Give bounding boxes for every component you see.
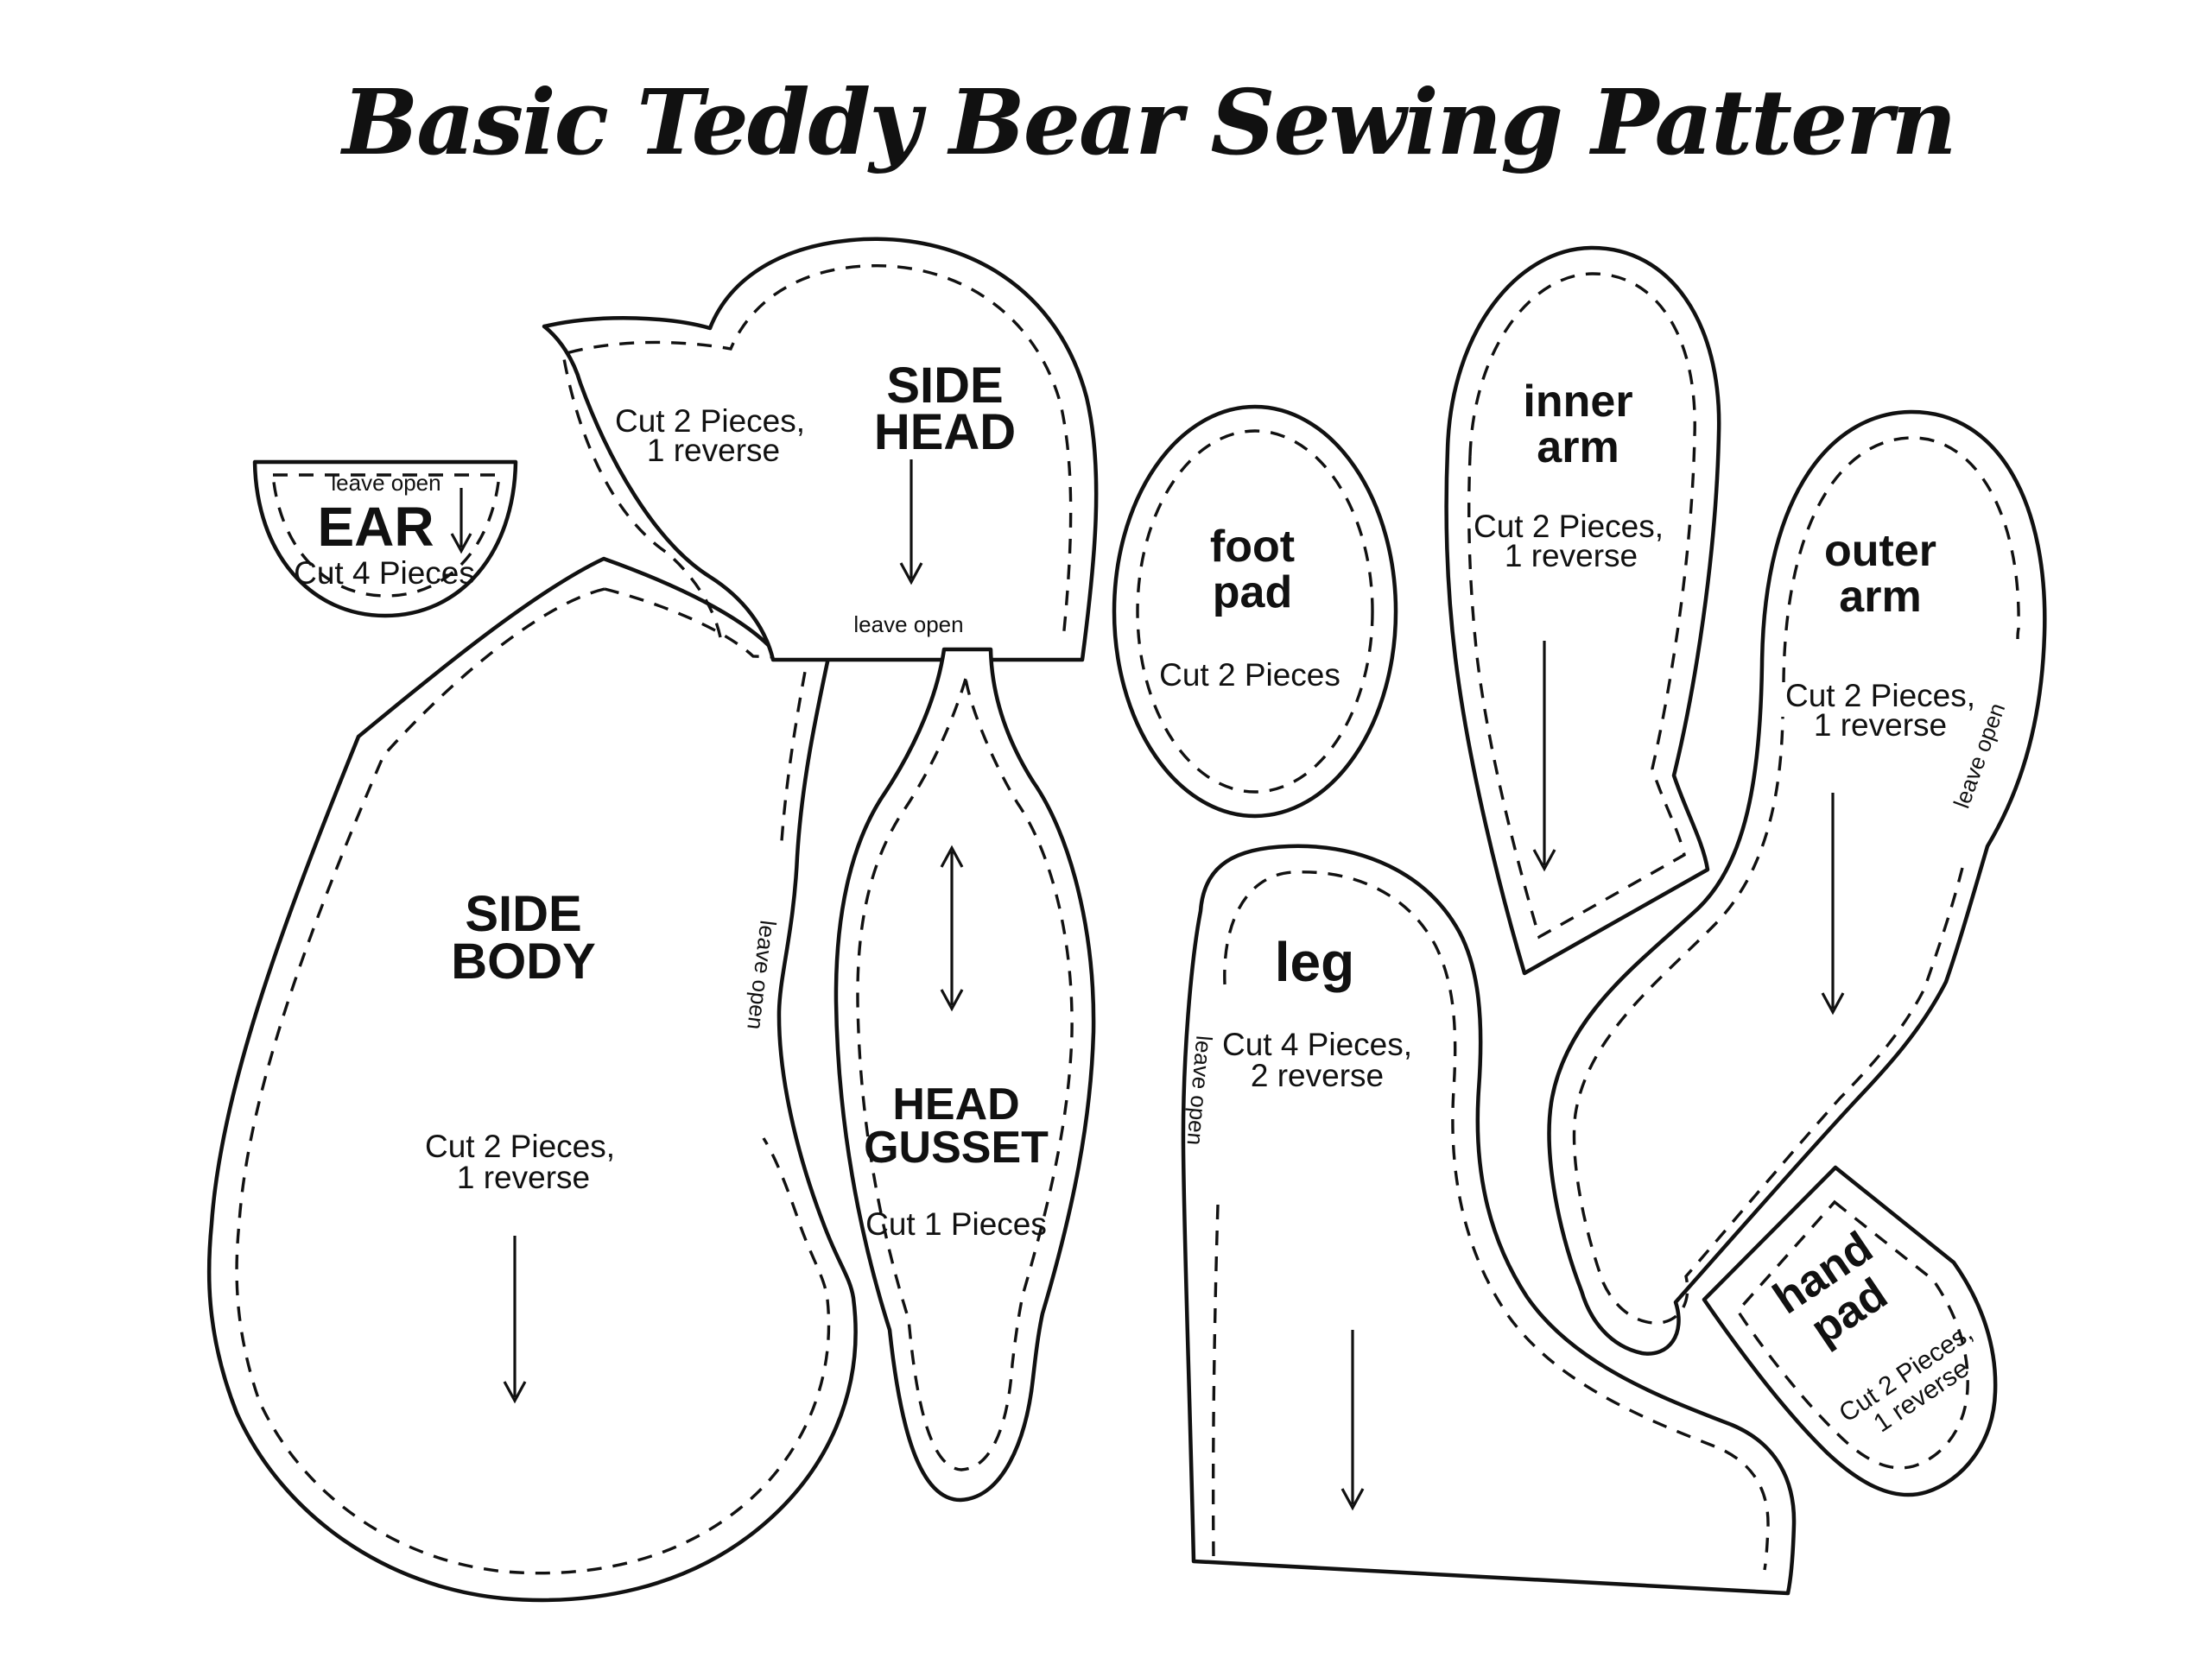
head-gusset-outline xyxy=(836,649,1093,1500)
pattern-canvas: Basic Teddy Bear Sewing Pattern SIDE BOD… xyxy=(0,0,2212,1658)
outer-arm-label-line2: arm xyxy=(1839,572,1921,622)
inner-arm-cut-line2: 1 reverse xyxy=(1505,538,1638,573)
pattern-sheet: Basic Teddy Bear Sewing Pattern SIDE BOD… xyxy=(0,0,2212,1658)
outer-arm-cut-line2: 1 reverse xyxy=(1814,707,1947,743)
inner-arm-label-line2: arm xyxy=(1537,422,1619,472)
inner-arm-outline xyxy=(1447,248,1720,973)
piece-foot-pad: foot pad Cut 2 Pieces xyxy=(1114,407,1396,816)
head-gusset-label-line2: GUSSET xyxy=(864,1123,1049,1173)
side-head-cut-line2: 1 reverse xyxy=(647,433,780,468)
side-body-cut-line1: Cut 2 Pieces, xyxy=(425,1129,615,1164)
side-head-label-line2: HEAD xyxy=(874,404,1016,460)
inner-arm-label-line1: inner xyxy=(1523,377,1632,427)
piece-ear: leave open EAR Cut 4 Pieces xyxy=(255,462,516,616)
outer-arm-label-line1: outer xyxy=(1824,526,1936,576)
piece-inner-arm: inner arm Cut 2 Pieces, 1 reverse xyxy=(1447,248,1720,973)
foot-pad-cut: Cut 2 Pieces xyxy=(1159,657,1341,693)
page-title: Basic Teddy Bear Sewing Pattern xyxy=(339,69,1955,175)
ear-cut: Cut 4 Pieces xyxy=(294,555,475,591)
side-body-cut-line2: 1 reverse xyxy=(457,1160,590,1195)
head-gusset-cut: Cut 1 Pieces xyxy=(865,1206,1047,1242)
leg-cut-line1: Cut 4 Pieces, xyxy=(1222,1027,1412,1062)
ear-leave-open-note: leave open xyxy=(331,470,440,496)
foot-pad-label-line2: pad xyxy=(1213,567,1292,617)
leg-cut-line2: 2 reverse xyxy=(1251,1058,1384,1093)
side-head-leave-open-note: leave open xyxy=(853,611,963,637)
side-body-label-line2: BODY xyxy=(451,933,596,990)
foot-pad-label-line1: foot xyxy=(1210,522,1295,572)
leg-label: leg xyxy=(1275,931,1354,993)
piece-side-body: SIDE BODY Cut 2 Pieces, 1 reverse leave … xyxy=(209,559,856,1600)
ear-label: EAR xyxy=(317,496,434,558)
side-body-outline xyxy=(209,559,856,1600)
piece-head-gusset: HEAD GUSSET Cut 1 Pieces xyxy=(836,649,1093,1500)
